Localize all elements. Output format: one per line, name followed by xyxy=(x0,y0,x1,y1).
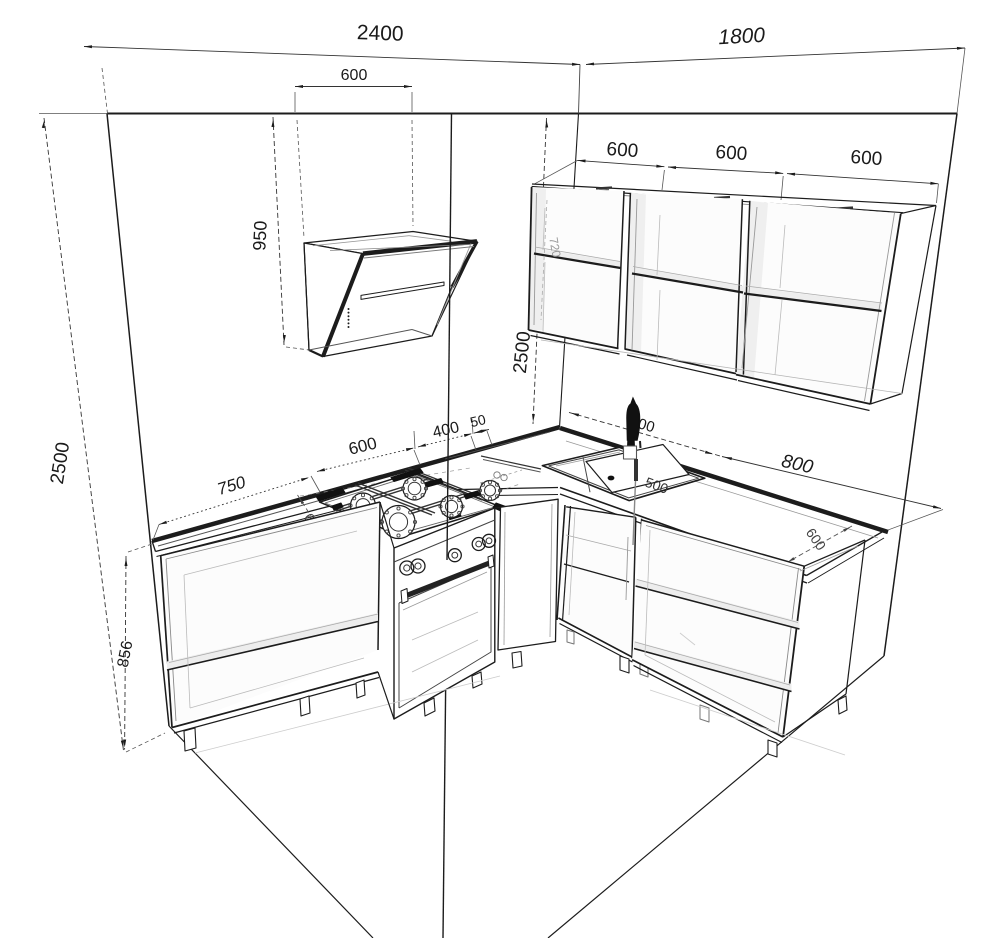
svg-text:950: 950 xyxy=(249,220,271,251)
svg-text:2400: 2400 xyxy=(356,21,403,46)
svg-text:600: 600 xyxy=(850,147,883,170)
svg-text:600: 600 xyxy=(715,142,748,165)
svg-text:600: 600 xyxy=(606,139,639,162)
svg-text:600: 600 xyxy=(341,67,368,84)
svg-text:2500: 2500 xyxy=(510,330,535,374)
svg-text:1800: 1800 xyxy=(718,24,766,49)
